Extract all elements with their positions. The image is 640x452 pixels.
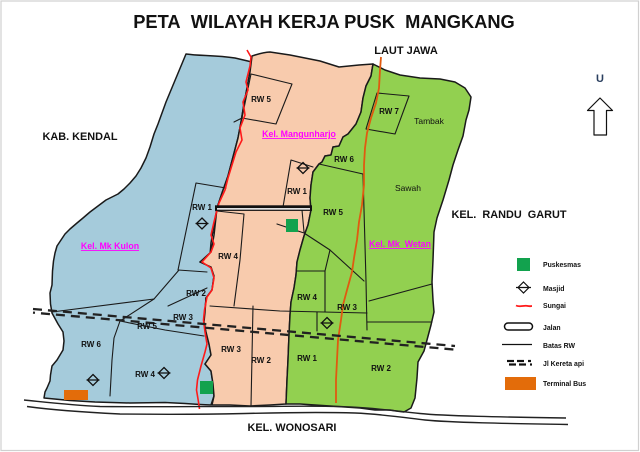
- svg-text:RW 4: RW 4: [297, 293, 317, 302]
- svg-text:Masjid: Masjid: [543, 286, 564, 293]
- svg-text:RW 2: RW 2: [371, 364, 391, 373]
- svg-text:RW 2: RW 2: [251, 356, 271, 365]
- svg-text:Terminal Bus: Terminal Bus: [543, 381, 586, 388]
- svg-text:RW 3: RW 3: [221, 345, 241, 354]
- svg-text:Sawah: Sawah: [395, 183, 421, 193]
- svg-text:RW 3: RW 3: [337, 303, 357, 312]
- svg-text:RW 4: RW 4: [218, 252, 238, 261]
- svg-text:RW 1: RW 1: [192, 203, 212, 212]
- svg-text:RW 1: RW 1: [287, 187, 307, 196]
- svg-text:RW 7: RW 7: [379, 107, 399, 116]
- svg-text:Puskesmas: Puskesmas: [543, 262, 581, 269]
- svg-text:RW 5: RW 5: [137, 322, 157, 331]
- svg-text:Jalan: Jalan: [543, 325, 561, 332]
- svg-text:RW 4: RW 4: [135, 370, 155, 379]
- svg-text:KEL. RANDU GARUT: KEL. RANDU GARUT: [452, 209, 567, 221]
- svg-text:Kel. Mangunharjo: Kel. Mangunharjo: [262, 129, 336, 139]
- svg-text:Sungai: Sungai: [543, 303, 566, 310]
- svg-text:RW 3: RW 3: [173, 313, 193, 322]
- svg-text:Kel. Mk Wetan: Kel. Mk Wetan: [369, 239, 431, 249]
- svg-text:RW 6: RW 6: [81, 340, 101, 349]
- svg-text:RW 2: RW 2: [186, 289, 206, 298]
- svg-text:KEL. WONOSARI: KEL. WONOSARI: [248, 422, 337, 434]
- svg-text:PETA WILAYAH KERJA PUSK MANG: PETA WILAYAH KERJA PUSK MANGKANG: [133, 11, 515, 32]
- svg-text:Jl Kereta api: Jl Kereta api: [543, 361, 584, 368]
- svg-text:U: U: [596, 73, 604, 85]
- svg-text:RW 6: RW 6: [334, 155, 354, 164]
- svg-text:Kel. Mk Kulon: Kel. Mk Kulon: [81, 241, 139, 251]
- svg-text:RW 1: RW 1: [297, 354, 317, 363]
- svg-text:Tambak: Tambak: [414, 116, 445, 126]
- svg-text:KAB. KENDAL: KAB. KENDAL: [42, 131, 117, 143]
- svg-text:Batas RW: Batas RW: [543, 343, 576, 350]
- svg-text:RW 5: RW 5: [251, 95, 271, 104]
- svg-text:RW 5: RW 5: [323, 208, 343, 217]
- svg-text:LAUT JAWA: LAUT JAWA: [374, 45, 438, 57]
